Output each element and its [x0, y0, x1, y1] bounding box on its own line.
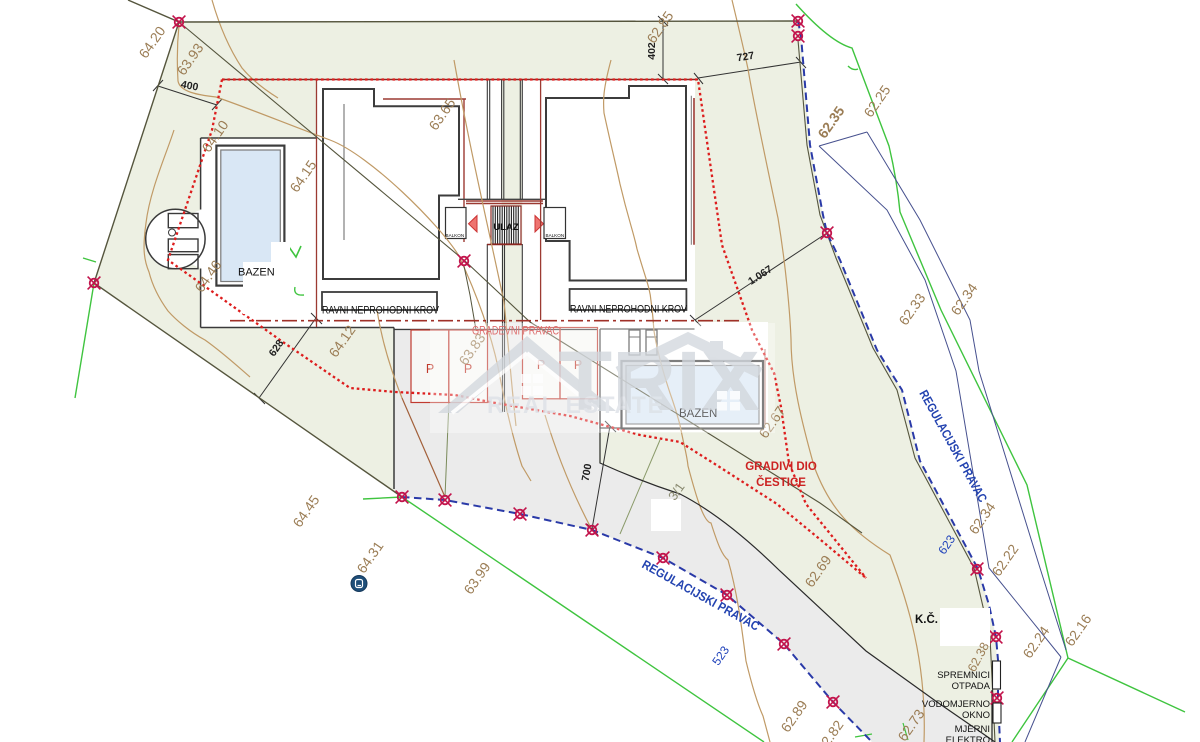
svg-text:K.Č.: K.Č.	[915, 613, 938, 626]
svg-text:RAVNI NEPROHODNI KROV: RAVNI NEPROHODNI KROV	[322, 305, 440, 317]
svg-text:MJERNI: MJERNI	[955, 724, 990, 735]
svg-text:ULAZ: ULAZ	[493, 222, 519, 233]
svg-text:SPREMNICI: SPREMNICI	[937, 670, 990, 681]
svg-text:REAL ESTATE: REAL ESTATE	[487, 392, 665, 419]
svg-text:ČESTICE: ČESTICE	[756, 476, 806, 489]
svg-text:BAZEN: BAZEN	[238, 267, 275, 279]
svg-text:BALKON: BALKON	[546, 233, 565, 238]
svg-text:GRADIVI DIO: GRADIVI DIO	[745, 461, 817, 473]
svg-text:402: 402	[646, 42, 658, 60]
svg-text:ELEKTRO: ELEKTRO	[946, 735, 990, 742]
svg-text:BALKON: BALKON	[446, 233, 465, 238]
svg-text:VODOMJERNO: VODOMJERNO	[922, 699, 990, 710]
svg-text:RAVNI NEPROHODNI KROV: RAVNI NEPROHODNI KROV	[570, 304, 688, 316]
svg-text:OTPADA: OTPADA	[952, 681, 991, 692]
svg-text:OKNO: OKNO	[962, 710, 990, 721]
